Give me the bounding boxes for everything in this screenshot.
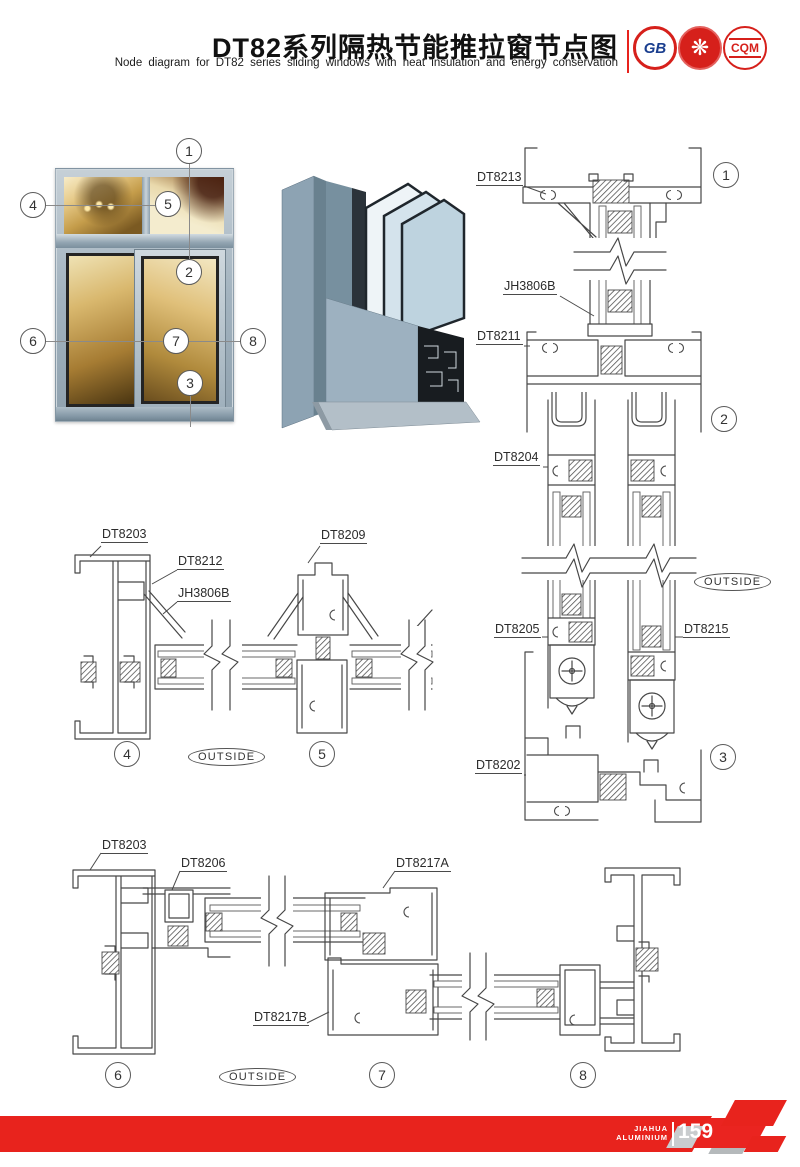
label-dt8203-mid: DT8203 <box>101 527 148 543</box>
footer-deco-red-2 <box>721 1100 787 1126</box>
photo-callout-8: 8 <box>240 328 266 354</box>
page-number: 159 <box>678 1120 713 1144</box>
label-dt8212: DT8212 <box>177 554 224 570</box>
footer-brand: JIAHUA ALUMINIUM <box>560 1124 668 1142</box>
section-callout-8: 8 <box>570 1062 596 1088</box>
section-callout-4: 4 <box>114 741 140 767</box>
label-dt8217a: DT8217A <box>395 856 451 872</box>
label-dt8213: DT8213 <box>476 170 523 186</box>
outside-label-mid: OUTSIDE <box>188 748 265 766</box>
cqm-cert-badge-icon: CQM <box>723 26 767 70</box>
outside-label-bottom: OUTSIDE <box>219 1068 296 1086</box>
section-callout-1: 1 <box>713 162 739 188</box>
header-divider <box>627 30 629 73</box>
photo-pane-top-left <box>64 177 142 234</box>
footer-brand-line2: ALUMINIUM <box>616 1133 668 1142</box>
section-callout-3: 3 <box>710 744 736 770</box>
quality-seal-badge-icon: ❋ <box>678 26 722 70</box>
page-subtitle: Node diagram for DT82 series sliding win… <box>115 57 618 69</box>
label-dt8206: DT8206 <box>180 856 227 872</box>
photo-bottom-track <box>56 407 233 421</box>
photo-callout-2: 2 <box>176 259 202 285</box>
section-callout-5: 5 <box>309 741 335 767</box>
vertical-section-drawing <box>470 140 800 840</box>
catalog-page: DT82系列隔热节能推拉窗节点图 Node diagram for DT82 s… <box>0 0 800 1167</box>
label-dt8205: DT8205 <box>494 622 541 638</box>
callout-line-6-7 <box>46 341 163 342</box>
label-dt8215: DT8215 <box>683 622 730 638</box>
label-jh3806b-mid: JH3806B <box>177 586 231 602</box>
photo-callout-1: 1 <box>176 138 202 164</box>
label-jh3806b-v: JH3806B <box>503 279 557 295</box>
profile-3d-render <box>268 150 483 435</box>
label-dt8217b: DT8217B <box>253 1010 309 1026</box>
photo-callout-6: 6 <box>20 328 46 354</box>
photo-mullion <box>142 177 150 234</box>
footer-brand-line1: JIAHUA <box>634 1124 668 1133</box>
label-dt8211: DT8211 <box>476 329 523 345</box>
photo-transom-bar <box>56 234 233 248</box>
label-dt8204: DT8204 <box>493 450 540 466</box>
callout-line-3 <box>190 396 191 427</box>
section-callout-2: 2 <box>711 406 737 432</box>
label-dt8202: DT8202 <box>475 758 522 774</box>
photo-callout-3: 3 <box>177 370 203 396</box>
label-dt8203-bottom: DT8203 <box>101 838 148 854</box>
photo-callout-7: 7 <box>163 328 189 354</box>
callout-line-7-8 <box>189 341 240 342</box>
horizontal-mid-section-drawing <box>60 520 450 775</box>
photo-callout-4: 4 <box>20 192 46 218</box>
footer-divider <box>672 1122 674 1146</box>
footer-deco-red-3 <box>744 1136 787 1152</box>
outside-label-vertical: OUTSIDE <box>694 573 771 591</box>
section-callout-6: 6 <box>105 1062 131 1088</box>
label-dt8209: DT8209 <box>320 528 367 544</box>
callout-line-1-2 <box>189 164 190 259</box>
photo-callout-5: 5 <box>155 191 181 217</box>
section-callout-7: 7 <box>369 1062 395 1088</box>
gb-cert-badge-icon: GB <box>633 26 677 70</box>
window-photo <box>55 168 234 422</box>
callout-line-4-5 <box>46 205 155 206</box>
